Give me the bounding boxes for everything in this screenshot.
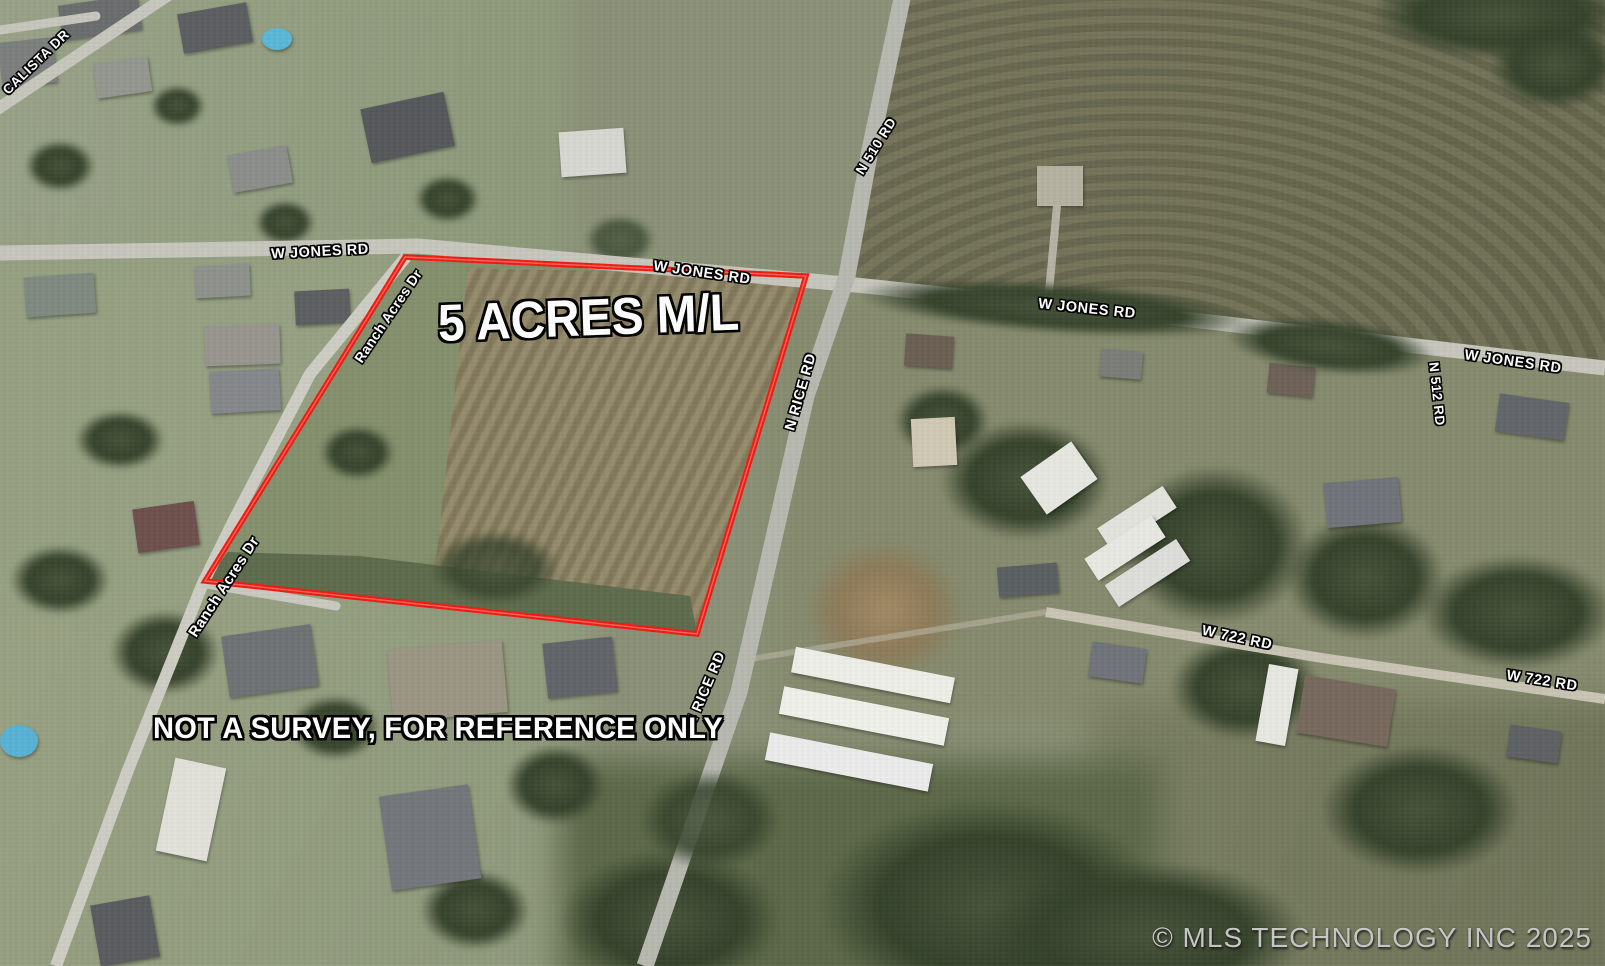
parcel-acreage-label: 5 ACRES M/L (437, 283, 740, 354)
roads-and-boundary (0, 0, 1605, 966)
disclaimer-text: NOT A SURVEY, FOR REFERENCE ONLY (153, 712, 723, 746)
copyright-watermark: © MLS TECHNOLOGY INC 2025 (1152, 922, 1592, 954)
satellite-map: CALISTA DR W JONES RD W JONES RD W JONES… (0, 0, 1605, 966)
